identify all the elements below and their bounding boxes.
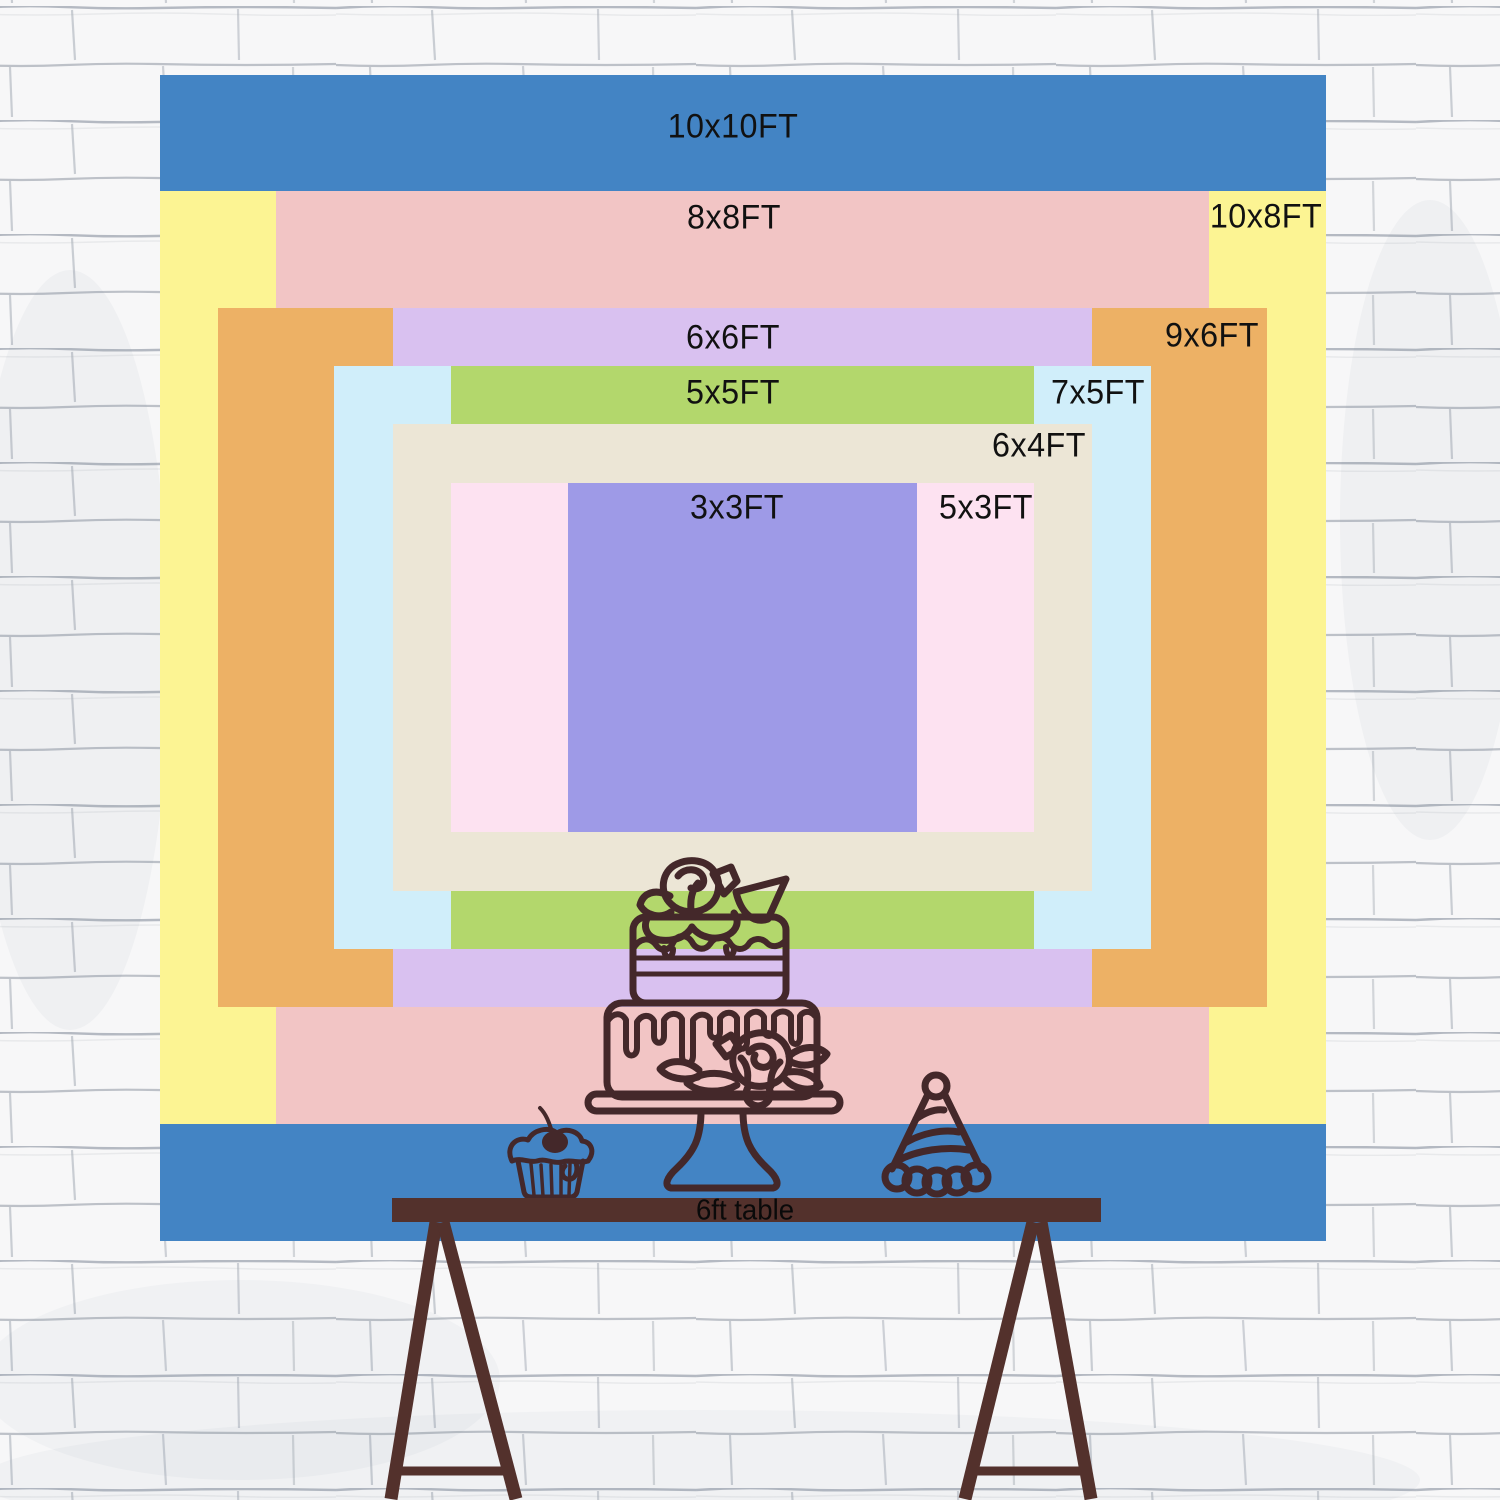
party-hat-icon: [885, 1075, 988, 1194]
table-legs-drawing: [391, 1222, 1091, 1499]
cherry-icon: [542, 1131, 568, 1153]
birthday-cake-icon: [588, 861, 840, 1188]
cupcake-icon: [510, 1108, 592, 1197]
decor-drawing: [0, 0, 1500, 1500]
backdrop-size-chart: 10x10FT 10x8FT 8x8FT 9x6FT 6x6FT 7x5FT 5…: [0, 0, 1500, 1500]
table-length-label: 6ft table: [696, 1195, 794, 1228]
